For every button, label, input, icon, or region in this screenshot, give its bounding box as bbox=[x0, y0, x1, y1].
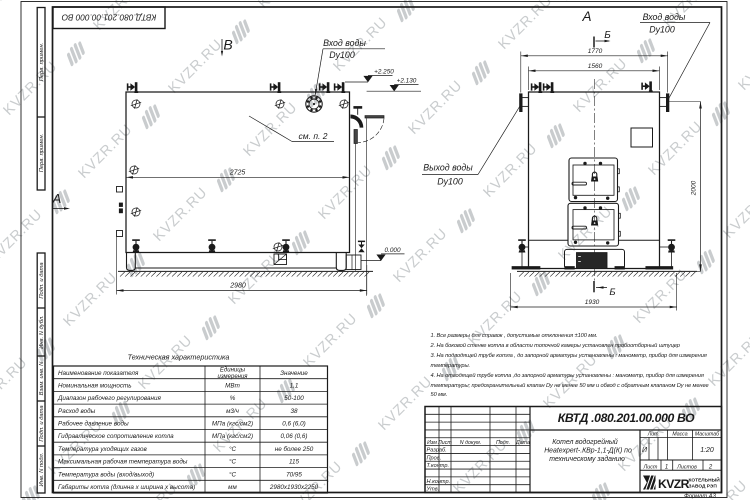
svg-text:Значение: Значение bbox=[280, 370, 308, 377]
svg-text:KVZR.RU: KVZR.RU bbox=[166, 37, 226, 97]
svg-text:%: % bbox=[230, 395, 236, 402]
svg-text:Dy100: Dy100 bbox=[437, 177, 463, 187]
svg-text:2980: 2980 bbox=[229, 283, 246, 290]
svg-text:Лит.: Лит. bbox=[647, 432, 660, 438]
svg-text:0,6 (6,0): 0,6 (6,0) bbox=[282, 420, 305, 427]
svg-text:Дата: Дата bbox=[515, 440, 530, 446]
svg-text:Максимальная рабочая температу: Максимальная рабочая температура воды bbox=[58, 458, 188, 466]
svg-text:50 мм.: 50 мм. bbox=[431, 392, 448, 398]
svg-text:Номинальная мощность: Номинальная мощность bbox=[58, 382, 132, 389]
svg-text:МПа (кгс/см2): МПа (кгс/см2) bbox=[212, 420, 253, 427]
svg-text:Наименование показателя: Наименование показателя bbox=[58, 370, 139, 377]
svg-text:KVZR.RU: KVZR.RU bbox=[226, 248, 286, 308]
svg-text:KVZR.RU: KVZR.RU bbox=[406, 78, 466, 138]
svg-text:Пров.: Пров. bbox=[427, 455, 442, 461]
svg-text:0.000: 0.000 bbox=[385, 247, 401, 254]
svg-text:Диапазон рабочего регулировани: Диапазон рабочего регулирования bbox=[57, 394, 161, 402]
svg-text:Разраб.: Разраб. bbox=[427, 448, 447, 454]
svg-text:3. На подводящей трубе котла: 3. На подводящей трубе котла , до запорн… bbox=[431, 352, 707, 359]
svg-text:Листов: Листов bbox=[676, 464, 697, 470]
svg-text:°С: °С bbox=[229, 458, 237, 466]
svg-text:МВт: МВт bbox=[225, 382, 240, 389]
svg-text:+2.250: +2.250 bbox=[374, 68, 394, 75]
svg-text:Н.контр.: Н.контр. bbox=[427, 479, 451, 485]
svg-text:70/95: 70/95 bbox=[286, 471, 302, 478]
svg-text:2980х1930х2250: 2980х1930х2250 bbox=[269, 484, 319, 491]
svg-text:температуры; предохранительны: температуры; предохранительный клапан Dу… bbox=[431, 382, 709, 389]
svg-text:см. п. 2: см. п. 2 bbox=[299, 131, 328, 141]
svg-text:KVZR.RU: KVZR.RU bbox=[721, 182, 750, 242]
svg-text:Формат А3: Формат А3 bbox=[684, 494, 716, 500]
svg-text:N докум.: N докум. bbox=[460, 440, 481, 446]
svg-text:Выход воды: Выход воды bbox=[423, 162, 473, 172]
svg-text:KVZR.RU: KVZR.RU bbox=[391, 226, 451, 286]
svg-text:Вход воды: Вход воды bbox=[643, 12, 686, 22]
svg-text:Вход воды: Вход воды bbox=[323, 38, 366, 48]
svg-text:измерения: измерения bbox=[217, 374, 248, 380]
svg-text:А: А bbox=[581, 9, 591, 24]
svg-text:Перв. примен.: Перв. примен. bbox=[39, 134, 45, 173]
svg-text:0,06 (0,6): 0,06 (0,6) bbox=[281, 433, 308, 440]
svg-text:1: 1 bbox=[665, 464, 668, 470]
svg-text:Изм: Изм bbox=[427, 440, 437, 446]
svg-text:Инв. N дубл.: Инв. N дубл. bbox=[39, 315, 45, 349]
svg-text:Heatexpert-.КВр-1,1-Д(К) по: Heatexpert-.КВр-1,1-Д(К) по bbox=[544, 448, 632, 455]
svg-text:МПа (кгс/см2): МПа (кгс/см2) bbox=[212, 433, 253, 440]
svg-text:4. На отводящей трубе котла ,: 4. На отводящей трубе котла ,до запорной… bbox=[431, 372, 704, 379]
svg-text:KVZR.RU: KVZR.RU bbox=[151, 185, 211, 245]
svg-text:Рабочее давление воды: Рабочее давление воды bbox=[58, 419, 129, 427]
svg-text:°С: °С bbox=[229, 470, 237, 478]
svg-text:ЗАВОД РЭП: ЗАВОД РЭП bbox=[689, 484, 718, 490]
svg-text:м3/ч: м3/ч bbox=[226, 408, 240, 415]
svg-text:°С: °С bbox=[229, 445, 237, 453]
svg-text:Перв. примен.: Перв. примен. bbox=[39, 43, 45, 82]
svg-text:Подп. и дата: Подп. и дата bbox=[39, 262, 45, 299]
svg-text:Dy100: Dy100 bbox=[329, 50, 355, 60]
svg-text:Б: Б bbox=[609, 287, 615, 298]
svg-text:1,1: 1,1 bbox=[290, 382, 299, 389]
svg-text:2000: 2000 bbox=[691, 180, 698, 196]
svg-text:Габариты котла (длинна х ширин: Габариты котла (длинна х ширина х высота… bbox=[58, 483, 195, 491]
svg-text:KVZR: KVZR bbox=[658, 477, 690, 491]
svg-text:1930: 1930 bbox=[585, 299, 600, 306]
svg-text:KVZR.RU: KVZR.RU bbox=[136, 333, 196, 393]
svg-text:мм: мм bbox=[228, 484, 237, 491]
svg-text:КОТЕЛЬНЫЙ: КОТЕЛЬНЫЙ bbox=[689, 475, 721, 483]
svg-text:В: В bbox=[223, 37, 232, 53]
svg-text:KVZR.RU: KVZR.RU bbox=[736, 34, 750, 94]
svg-text:KVZR.RU: KVZR.RU bbox=[481, 141, 541, 201]
svg-text:1:20: 1:20 bbox=[700, 447, 714, 454]
svg-text:115: 115 bbox=[289, 459, 300, 466]
svg-text:Взам. инв. N: Взам. инв. N bbox=[39, 361, 45, 396]
svg-text:KVZR.RU: KVZR.RU bbox=[61, 270, 121, 330]
svg-text:Dy100: Dy100 bbox=[649, 25, 675, 35]
svg-text:KVZR.RU: KVZR.RU bbox=[646, 119, 706, 179]
svg-text:техническому заданию: техническому заданию bbox=[549, 455, 625, 463]
svg-text:Котел водогрейный: Котел водогрейный bbox=[552, 438, 618, 446]
svg-text:Гидравлическое сопротивление к: Гидравлическое сопротивление котла bbox=[58, 432, 174, 440]
svg-text:38: 38 bbox=[290, 408, 298, 415]
svg-text:Масштаб: Масштаб bbox=[695, 432, 720, 438]
svg-text:50-100: 50-100 bbox=[284, 395, 304, 402]
svg-text:Масса: Масса bbox=[672, 432, 687, 438]
svg-text:2725: 2725 bbox=[229, 170, 246, 177]
svg-text:Инв. N подл.: Инв. N подл. bbox=[39, 453, 45, 487]
svg-text:Лист: Лист bbox=[437, 440, 452, 446]
svg-text:Утв.: Утв. bbox=[426, 487, 440, 493]
svg-text:1770: 1770 bbox=[588, 48, 603, 55]
svg-text:Единицы: Единицы bbox=[220, 368, 246, 374]
svg-text:Подп. и дата: Подп. и дата bbox=[39, 405, 45, 442]
svg-text:2. На боковой стенке котла в: 2. На боковой стенке котла в области топ… bbox=[430, 342, 680, 349]
svg-text:Температура воды (вход/выход): Температура воды (вход/выход) bbox=[58, 470, 154, 478]
svg-text:А: А bbox=[52, 191, 62, 206]
svg-text:KVZR.RU: KVZR.RU bbox=[241, 100, 301, 160]
svg-text:Б: Б bbox=[604, 30, 611, 41]
svg-text:1. Все размеры для справок ,: 1. Все размеры для справок , допустимые … bbox=[431, 333, 598, 339]
svg-text:Т.контр.: Т.контр. bbox=[427, 463, 450, 469]
svg-text:КВТД .080.201.00.000 ВО: КВТД .080.201.00.000 ВО bbox=[558, 411, 695, 425]
svg-text:1560: 1560 bbox=[588, 63, 603, 70]
svg-text:KVZR.RU: KVZR.RU bbox=[0, 207, 46, 267]
svg-text:KVZR.RU: KVZR.RU bbox=[76, 122, 136, 182]
svg-text:KVZR.RU: KVZR.RU bbox=[541, 352, 601, 412]
svg-text:KVZR.RU: KVZR.RU bbox=[496, 0, 556, 53]
svg-text:температуры.: температуры. bbox=[431, 363, 471, 369]
svg-text:не более 250: не более 250 bbox=[275, 445, 314, 453]
svg-text:KVZR.RU: KVZR.RU bbox=[376, 374, 436, 434]
svg-text:KVZR.RU: KVZR.RU bbox=[0, 355, 31, 415]
svg-text:KVZR.RU: KVZR.RU bbox=[466, 289, 526, 349]
svg-text:КВТД.080.201.00.000 ВО: КВТД.080.201.00.000 ВО bbox=[61, 12, 156, 22]
svg-text:Подп.: Подп. bbox=[496, 440, 510, 446]
svg-text:Температура уходящих газов: Температура уходящих газов bbox=[58, 445, 147, 453]
svg-text:Лист: Лист bbox=[643, 464, 658, 470]
svg-text:Расход воды: Расход воды bbox=[58, 407, 96, 415]
svg-text:Техническая характеристика: Техническая характеристика bbox=[128, 352, 230, 361]
svg-text:KVZR.RU: KVZR.RU bbox=[301, 311, 361, 371]
svg-text:KVZR.RU: KVZR.RU bbox=[706, 330, 750, 390]
svg-text:2: 2 bbox=[708, 464, 713, 470]
svg-text:+2.130: +2.130 bbox=[397, 77, 417, 84]
